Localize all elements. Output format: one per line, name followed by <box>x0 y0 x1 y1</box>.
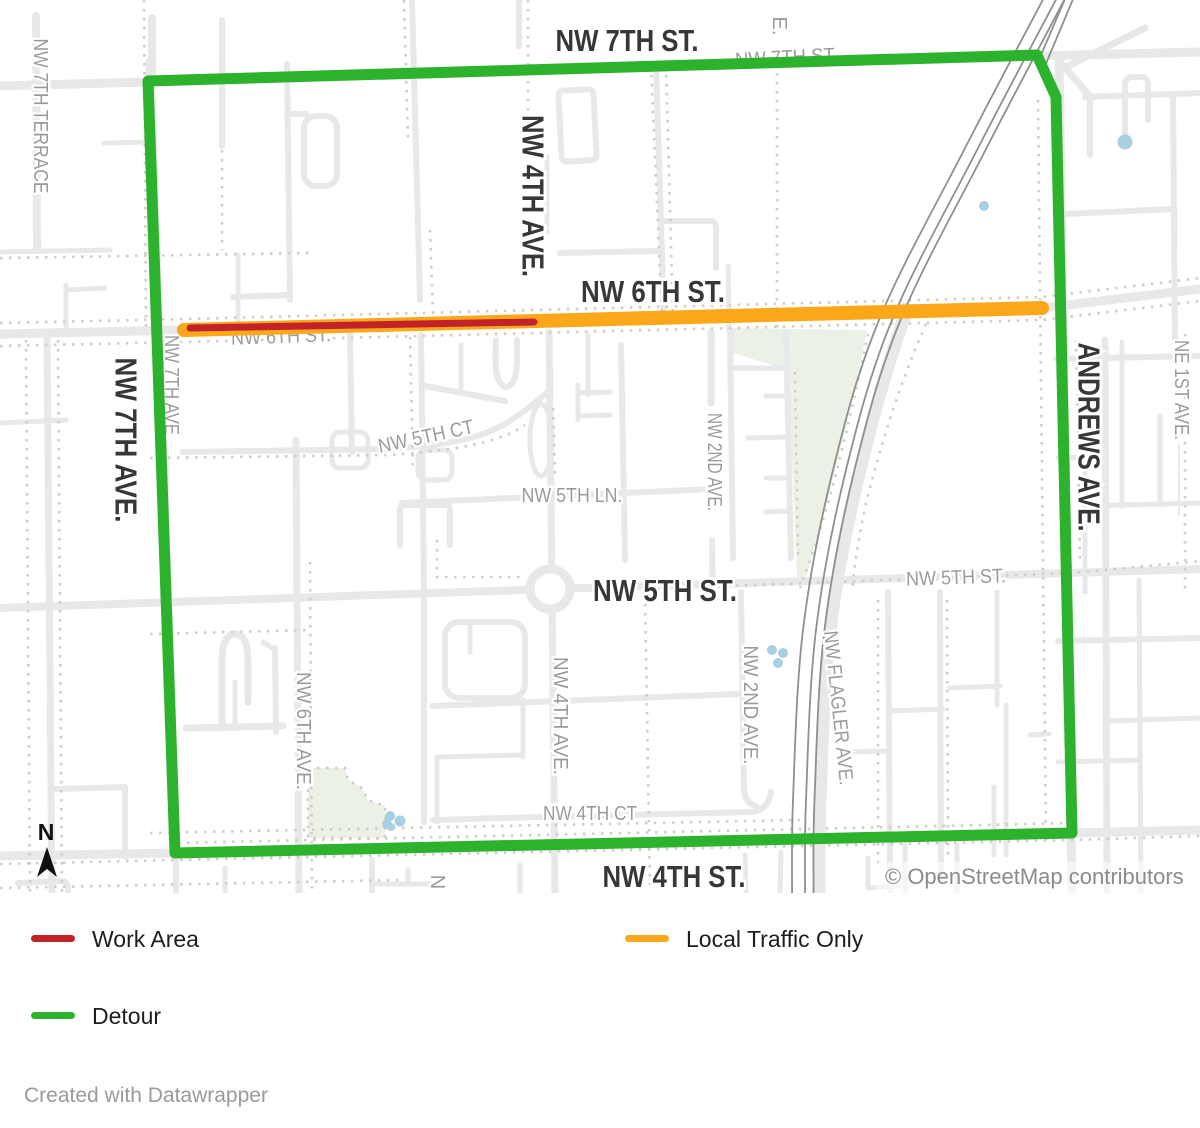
svg-text:NW 6TH ST.: NW 6TH ST. <box>581 274 725 309</box>
svg-text:N: N <box>38 819 55 845</box>
svg-text:NW 6TH AVE.: NW 6TH AVE. <box>292 672 314 790</box>
svg-text:NW 4TH CT: NW 4TH CT <box>543 803 637 825</box>
svg-text:NE 1ST AVE.: NE 1ST AVE. <box>1170 340 1192 440</box>
svg-text:NW 5TH LN.: NW 5TH LN. <box>522 485 623 507</box>
svg-text:N: N <box>426 875 448 889</box>
svg-text:E.: E. <box>768 17 790 36</box>
svg-text:NW 4TH AVE.: NW 4TH AVE. <box>516 115 551 277</box>
svg-text:© OpenStreetMap contributors: © OpenStreetMap contributors <box>885 864 1184 889</box>
svg-text:NW 7TH TERRACE: NW 7TH TERRACE <box>29 39 51 194</box>
svg-text:NW 7TH AVE.: NW 7TH AVE. <box>109 358 144 523</box>
svg-text:NW 5TH ST.: NW 5TH ST. <box>906 565 1007 590</box>
svg-text:NW 7TH ST.: NW 7TH ST. <box>556 23 699 58</box>
svg-text:ANDREWS AVE.: ANDREWS AVE. <box>1072 343 1107 532</box>
svg-text:NW 5TH ST.: NW 5TH ST. <box>593 573 737 608</box>
svg-text:NW 4TH AVE.: NW 4TH AVE. <box>549 657 571 775</box>
svg-text:NW 2ND AVE.: NW 2ND AVE. <box>703 413 725 511</box>
svg-text:NW 4TH ST.: NW 4TH ST. <box>603 859 746 894</box>
svg-text:NW 2ND AVE.: NW 2ND AVE. <box>739 646 761 765</box>
